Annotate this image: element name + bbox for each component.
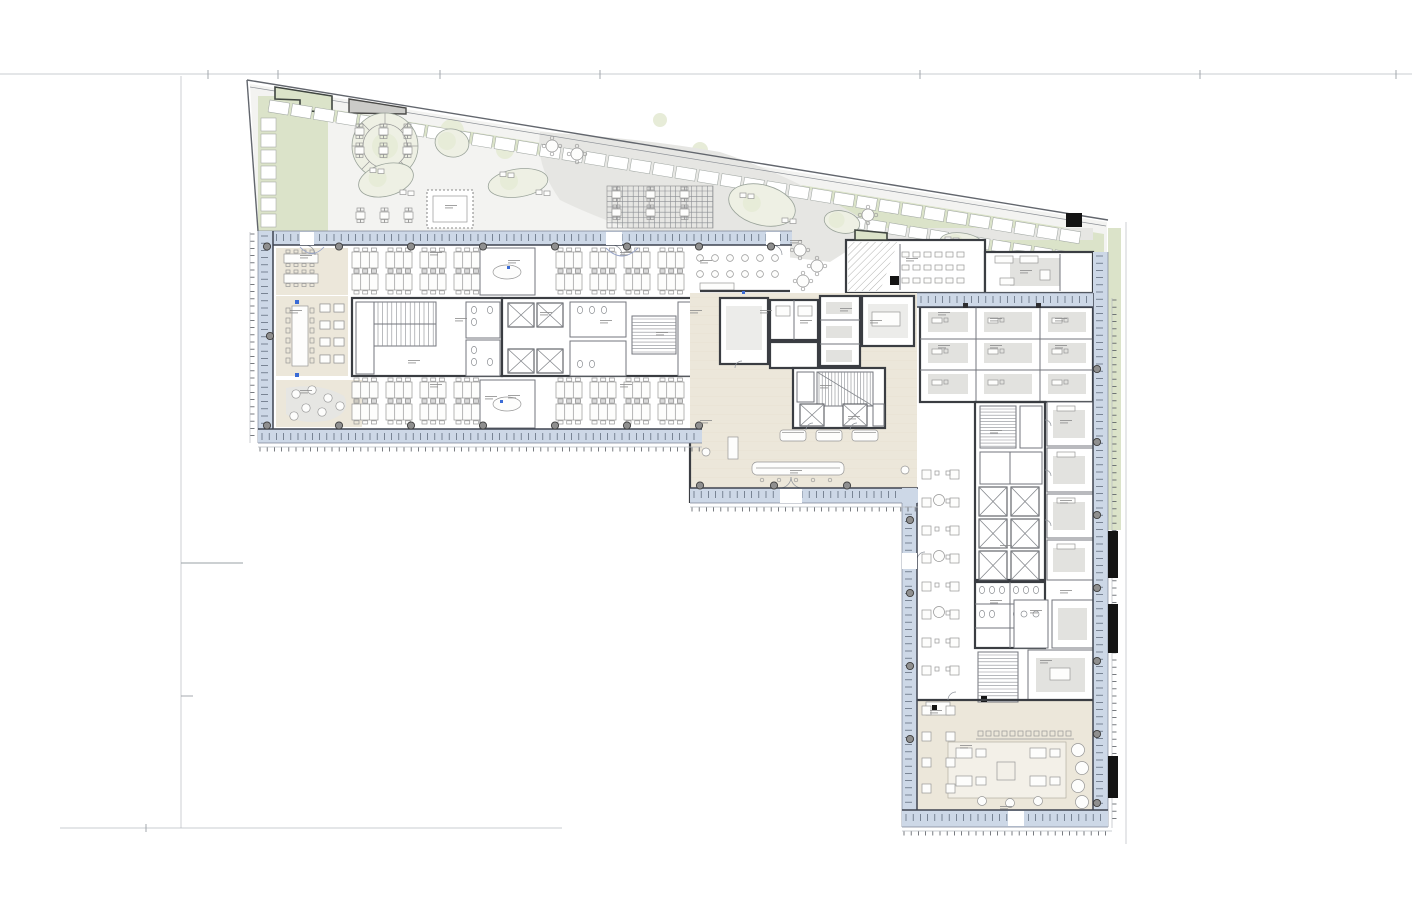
bar-seat bbox=[946, 265, 953, 270]
micro-label bbox=[1060, 592, 1068, 593]
booth-sofa bbox=[956, 748, 972, 758]
micro-label bbox=[430, 252, 442, 253]
wc-fixture bbox=[589, 306, 594, 313]
micro-label bbox=[990, 602, 998, 603]
chair bbox=[807, 264, 811, 268]
wc-fixture bbox=[989, 610, 994, 617]
rect bbox=[658, 382, 684, 398]
bar-seat bbox=[913, 278, 920, 283]
rect bbox=[404, 212, 413, 219]
island-green bbox=[829, 212, 845, 228]
square-table bbox=[922, 582, 931, 591]
micro-label bbox=[620, 384, 632, 385]
rect bbox=[590, 404, 616, 420]
micro-label bbox=[1030, 610, 1042, 611]
chair bbox=[801, 287, 805, 291]
micro-label bbox=[455, 320, 463, 321]
square-table bbox=[950, 666, 959, 675]
facade-band bbox=[258, 429, 702, 443]
table bbox=[976, 749, 986, 757]
square-table bbox=[950, 526, 959, 535]
rect bbox=[403, 128, 412, 135]
desk bbox=[988, 380, 998, 385]
square-table bbox=[320, 355, 330, 363]
rect bbox=[380, 212, 389, 219]
square-table bbox=[646, 187, 655, 202]
right-wing bbox=[917, 307, 1093, 810]
micro-label bbox=[408, 362, 416, 363]
micro-label bbox=[656, 334, 664, 335]
long-table bbox=[284, 274, 318, 283]
rect bbox=[352, 274, 378, 290]
micro-label bbox=[990, 432, 998, 433]
micro-label bbox=[870, 322, 878, 323]
square-table bbox=[334, 338, 344, 346]
lounge-chair bbox=[378, 169, 384, 174]
wc-room bbox=[466, 340, 500, 376]
facade-band bbox=[690, 488, 918, 503]
micro-label bbox=[430, 386, 438, 387]
room-rug bbox=[1053, 548, 1085, 572]
armchair bbox=[772, 271, 779, 278]
column bbox=[1093, 365, 1100, 372]
bar-seat bbox=[935, 252, 942, 257]
micro-label bbox=[960, 745, 972, 746]
planting-patch bbox=[653, 113, 667, 127]
rect bbox=[386, 274, 412, 290]
square-table bbox=[922, 784, 931, 793]
square-table bbox=[922, 706, 931, 715]
armchair bbox=[742, 271, 749, 278]
micro-label bbox=[1000, 808, 1008, 809]
rect bbox=[386, 404, 412, 420]
column bbox=[551, 422, 558, 429]
rect bbox=[454, 382, 480, 398]
square-table bbox=[950, 554, 959, 563]
column bbox=[266, 332, 273, 339]
column bbox=[407, 422, 414, 429]
round-table bbox=[546, 140, 558, 152]
round-table bbox=[318, 408, 326, 416]
paver-tile bbox=[261, 150, 276, 163]
micro-label bbox=[800, 322, 808, 323]
micro-label bbox=[1055, 347, 1063, 348]
wc-fixture bbox=[589, 360, 594, 367]
entrance-gap bbox=[780, 489, 802, 503]
service-room bbox=[570, 341, 626, 376]
rect bbox=[624, 274, 650, 290]
door-gap bbox=[606, 232, 622, 245]
rect bbox=[590, 252, 616, 268]
wc-fixture bbox=[471, 358, 476, 365]
chair bbox=[801, 271, 805, 275]
door-gap bbox=[300, 232, 314, 245]
lounge-chair bbox=[782, 218, 788, 223]
rect bbox=[646, 191, 655, 198]
micro-label bbox=[430, 254, 438, 255]
black-facade-panels bbox=[1108, 531, 1118, 798]
column bbox=[1093, 438, 1100, 445]
micro-label bbox=[990, 347, 998, 348]
column bbox=[906, 589, 913, 596]
micro-label bbox=[1060, 420, 1072, 421]
bar-seat bbox=[946, 278, 953, 283]
micro-label bbox=[960, 747, 968, 748]
column-square bbox=[963, 303, 968, 308]
lobby-room bbox=[770, 342, 818, 368]
square-table bbox=[612, 205, 621, 220]
micro-label bbox=[485, 396, 497, 397]
square-table bbox=[680, 205, 689, 220]
bar-seat bbox=[935, 265, 942, 270]
micro-label bbox=[408, 360, 420, 361]
wc-fixture bbox=[577, 360, 582, 367]
micro-label bbox=[700, 260, 712, 261]
black-facade-panel bbox=[1108, 531, 1118, 578]
column bbox=[263, 243, 270, 250]
bar-seat bbox=[946, 252, 953, 257]
micro-label bbox=[290, 310, 302, 311]
micro-label bbox=[300, 392, 308, 393]
micro-label bbox=[990, 430, 1002, 431]
round-table bbox=[797, 275, 809, 287]
rect bbox=[798, 306, 812, 316]
column bbox=[1093, 799, 1100, 806]
round-table bbox=[292, 390, 300, 398]
lounge-sofa bbox=[995, 256, 1013, 263]
room-rug bbox=[826, 350, 852, 362]
square-table bbox=[922, 638, 931, 647]
micro-label bbox=[620, 254, 628, 255]
wc-fixture bbox=[999, 586, 1004, 593]
micro-label bbox=[938, 347, 946, 348]
column-square bbox=[1036, 303, 1041, 308]
rect bbox=[352, 404, 378, 420]
micro-label bbox=[700, 262, 708, 263]
facade-band bbox=[1093, 252, 1108, 827]
lounge-chair bbox=[408, 191, 414, 196]
table bbox=[976, 777, 986, 785]
micro-label bbox=[760, 310, 772, 311]
square-table bbox=[334, 321, 344, 329]
rect bbox=[352, 382, 378, 398]
square-table bbox=[320, 321, 330, 329]
table bbox=[1050, 668, 1070, 680]
square-table bbox=[922, 554, 931, 563]
micro-label bbox=[700, 420, 712, 421]
wc-fixture bbox=[471, 306, 476, 313]
micro-label bbox=[820, 387, 828, 388]
lobby-sofa bbox=[816, 430, 842, 441]
micro-label bbox=[848, 416, 860, 417]
square-table bbox=[922, 498, 931, 507]
micro-label bbox=[1060, 502, 1068, 503]
paver-tile bbox=[261, 118, 276, 131]
lobby-sofa bbox=[780, 430, 806, 441]
room-rug bbox=[1053, 502, 1085, 530]
rect bbox=[356, 212, 365, 219]
square-table bbox=[680, 187, 689, 202]
square-table bbox=[334, 304, 344, 312]
column bbox=[479, 243, 486, 250]
micro-label bbox=[848, 418, 856, 419]
door-gap bbox=[902, 553, 917, 569]
rect bbox=[658, 274, 684, 290]
rect bbox=[355, 128, 364, 135]
rect bbox=[612, 191, 621, 198]
micro-label bbox=[938, 314, 946, 315]
column bbox=[407, 243, 414, 250]
lounge-table bbox=[1040, 270, 1050, 280]
roof-skylight-black bbox=[1066, 213, 1082, 227]
rect bbox=[624, 404, 650, 420]
bar-seat bbox=[957, 278, 964, 283]
micro-label bbox=[790, 472, 798, 473]
sofa bbox=[1057, 452, 1075, 457]
facade-band bbox=[917, 293, 1093, 307]
island-green bbox=[438, 132, 456, 150]
facade-band bbox=[902, 810, 1108, 827]
square-table bbox=[320, 304, 330, 312]
floor-plan-drawing bbox=[0, 0, 1427, 906]
desk bbox=[932, 349, 942, 354]
column bbox=[770, 482, 777, 489]
chair bbox=[793, 279, 797, 283]
micro-label bbox=[690, 312, 698, 313]
rect bbox=[776, 306, 790, 316]
round-table bbox=[978, 797, 987, 806]
round-table bbox=[862, 209, 874, 221]
core-room bbox=[980, 452, 1042, 484]
round-table bbox=[290, 412, 298, 420]
rect bbox=[454, 252, 480, 268]
micro-label bbox=[1020, 270, 1032, 271]
micro-label bbox=[508, 395, 520, 396]
rect bbox=[612, 209, 621, 216]
wc-fixture bbox=[1013, 586, 1018, 593]
bar-seat bbox=[924, 278, 931, 283]
column bbox=[335, 422, 342, 429]
wc-room bbox=[466, 302, 500, 338]
wc-fixture bbox=[487, 306, 492, 313]
desk bbox=[932, 318, 942, 323]
micro-label bbox=[760, 312, 768, 313]
column bbox=[843, 482, 850, 489]
wc-fixture bbox=[1033, 586, 1038, 593]
rect bbox=[556, 274, 582, 290]
floor-plan-canvas bbox=[0, 0, 1427, 906]
square-table bbox=[922, 666, 931, 675]
round-table bbox=[934, 551, 945, 562]
booth-sofa bbox=[1030, 776, 1046, 786]
desk bbox=[988, 349, 998, 354]
rect bbox=[454, 404, 480, 420]
square-table bbox=[320, 338, 330, 346]
micro-label bbox=[990, 320, 998, 321]
column bbox=[906, 516, 913, 523]
wc-fixture bbox=[979, 610, 984, 617]
paver-tile bbox=[261, 134, 276, 147]
bar-seat bbox=[913, 252, 920, 257]
meeting-table bbox=[493, 397, 521, 411]
rect bbox=[379, 147, 388, 154]
square-table bbox=[946, 784, 955, 793]
round-table bbox=[1076, 796, 1089, 809]
micro-label bbox=[600, 322, 608, 323]
rect bbox=[355, 147, 364, 154]
lounge-chair bbox=[400, 190, 406, 195]
micro-label bbox=[1000, 545, 1012, 546]
micro-label bbox=[300, 257, 308, 258]
bar-seat bbox=[902, 278, 909, 283]
desk bbox=[1052, 349, 1062, 354]
accent-marker bbox=[742, 291, 745, 294]
rect bbox=[454, 274, 480, 290]
armchair bbox=[757, 255, 764, 262]
micro-label bbox=[290, 312, 298, 313]
armchair bbox=[712, 271, 719, 278]
micro-label bbox=[620, 386, 628, 387]
rect bbox=[379, 128, 388, 135]
micro-label bbox=[790, 242, 798, 243]
table bbox=[1050, 749, 1060, 757]
micro-label bbox=[1060, 422, 1068, 423]
booth-sofa bbox=[956, 776, 972, 786]
micro-label bbox=[906, 258, 918, 259]
micro-label bbox=[990, 600, 1002, 601]
sofa bbox=[1057, 544, 1075, 549]
bar-seat bbox=[957, 265, 964, 270]
booth-sofa bbox=[1030, 748, 1046, 758]
accent-marker bbox=[295, 300, 299, 304]
micro-label bbox=[508, 260, 520, 261]
square-table bbox=[922, 758, 931, 767]
shower-room bbox=[1014, 600, 1048, 648]
micro-label bbox=[800, 320, 812, 321]
rect bbox=[590, 382, 616, 398]
rect bbox=[352, 252, 378, 268]
rect bbox=[386, 382, 412, 398]
column bbox=[1093, 584, 1100, 591]
lounge-chair bbox=[500, 172, 506, 177]
square-table bbox=[334, 355, 344, 363]
micro-label bbox=[1055, 318, 1067, 319]
wc-fixture bbox=[471, 318, 476, 325]
facade-corner bbox=[902, 488, 917, 503]
room-rug bbox=[1053, 410, 1085, 438]
micro-label bbox=[1055, 345, 1067, 346]
square-table bbox=[946, 732, 955, 741]
paver-tile bbox=[261, 166, 276, 179]
rect bbox=[556, 404, 582, 420]
micro-label bbox=[1000, 547, 1008, 548]
wc-fixture bbox=[577, 306, 582, 313]
micro-label bbox=[1060, 590, 1072, 591]
square-table bbox=[946, 758, 955, 767]
micro-label bbox=[600, 320, 612, 321]
rect bbox=[646, 209, 655, 216]
black-facade-panel bbox=[1108, 604, 1118, 653]
micro-label bbox=[656, 332, 668, 333]
micro-label bbox=[485, 398, 493, 399]
column bbox=[695, 243, 702, 250]
lounge-chair bbox=[544, 191, 550, 196]
core-room bbox=[356, 302, 374, 374]
island-black bbox=[932, 705, 937, 710]
rect bbox=[420, 274, 446, 290]
accent-marker bbox=[507, 266, 510, 269]
cafe-counter bbox=[700, 283, 734, 290]
micro-label bbox=[930, 710, 942, 711]
round-table bbox=[324, 394, 332, 402]
sofa bbox=[1057, 406, 1075, 411]
core-room bbox=[797, 372, 814, 402]
column bbox=[1093, 511, 1100, 518]
micro-label bbox=[938, 312, 950, 313]
micro-label bbox=[508, 397, 516, 398]
round-table bbox=[571, 148, 583, 160]
wc-fixture bbox=[471, 346, 476, 353]
micro-label bbox=[700, 422, 708, 423]
micro-label bbox=[870, 320, 882, 321]
round-table bbox=[1072, 744, 1085, 757]
bar-seat bbox=[957, 252, 964, 257]
stair-b bbox=[632, 316, 676, 354]
bar-seat bbox=[935, 278, 942, 283]
micro-label bbox=[790, 470, 802, 471]
lounge-chair bbox=[370, 168, 376, 173]
bar-seat bbox=[902, 265, 909, 270]
rect bbox=[658, 252, 684, 268]
lounge-sofa bbox=[1000, 278, 1014, 285]
rect bbox=[658, 404, 684, 420]
micro-label bbox=[540, 314, 548, 315]
column bbox=[1093, 730, 1100, 737]
column bbox=[263, 422, 270, 429]
wc-fixture bbox=[601, 306, 606, 313]
square-table bbox=[922, 732, 931, 741]
circle bbox=[1033, 611, 1039, 617]
armchair bbox=[697, 271, 704, 278]
square-table bbox=[950, 470, 959, 479]
desk bbox=[932, 380, 942, 385]
bar-seat bbox=[924, 252, 931, 257]
column bbox=[551, 243, 558, 250]
accent-marker bbox=[295, 373, 299, 377]
desk bbox=[1052, 380, 1062, 385]
room-rug bbox=[826, 326, 852, 338]
rect bbox=[590, 274, 616, 290]
wc-fixture bbox=[989, 586, 994, 593]
bar-seat bbox=[902, 252, 909, 257]
round-table bbox=[934, 495, 945, 506]
armchair bbox=[757, 271, 764, 278]
micro-label bbox=[1030, 612, 1038, 613]
wc-fixture bbox=[979, 586, 984, 593]
round-table bbox=[934, 607, 945, 618]
door-gap bbox=[1008, 811, 1024, 826]
column bbox=[479, 422, 486, 429]
micro-label bbox=[990, 345, 1002, 346]
micro-label bbox=[840, 310, 848, 311]
column bbox=[906, 735, 913, 742]
square-table bbox=[922, 610, 931, 619]
core-room bbox=[873, 404, 884, 426]
rect bbox=[403, 147, 412, 154]
round-table bbox=[336, 402, 344, 410]
square-table bbox=[950, 610, 959, 619]
rect bbox=[556, 252, 582, 268]
